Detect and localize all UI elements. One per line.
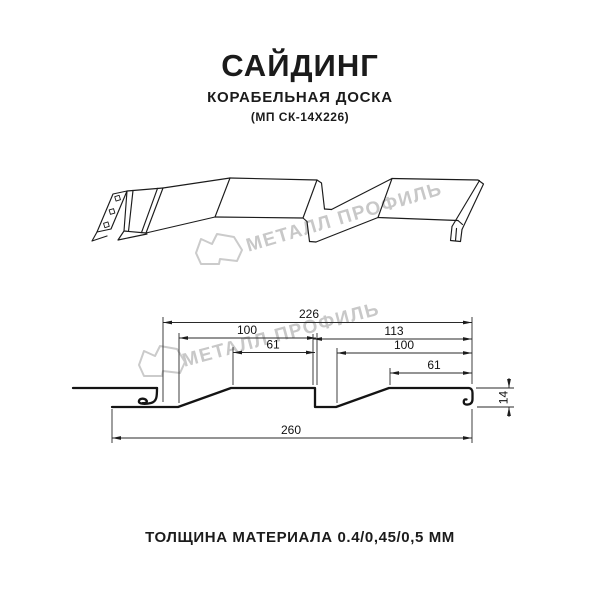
panel-3d-lines xyxy=(92,178,484,242)
cross-section-drawing: 226 100 61 113 100 61 14 260 xyxy=(0,290,600,460)
page: САЙДИНГ КОРАБЕЛЬНАЯ ДОСКА (МП СК-14Х226)… xyxy=(0,0,600,600)
dimension-arrows xyxy=(112,321,511,440)
dim-label-profile-height: 14 xyxy=(497,391,511,405)
dim-label-right-span: 113 xyxy=(384,324,403,338)
thickness-note: ТОЛЩИНА МАТЕРИАЛА 0.4/0,45/0,5 ММ xyxy=(0,529,600,546)
dim-label-flat2-width: 61 xyxy=(427,358,441,372)
dim-label-flat1-width: 61 xyxy=(266,338,280,352)
dim-label-board1-width: 100 xyxy=(237,323,257,337)
dim-label-overall-width: 260 xyxy=(281,423,301,437)
profile-outline xyxy=(73,388,473,407)
page-title: САЙДИНГ xyxy=(0,48,600,84)
perspective-drawing xyxy=(0,150,600,270)
dim-label-board2-width: 100 xyxy=(394,338,414,352)
dim-label-module-width: 226 xyxy=(299,307,319,321)
model-code: (МП СК-14Х226) xyxy=(0,110,600,124)
product-subtitle: КОРАБЕЛЬНАЯ ДОСКА xyxy=(0,89,600,106)
dimension-lines xyxy=(112,323,509,439)
extension-lines xyxy=(112,317,514,443)
